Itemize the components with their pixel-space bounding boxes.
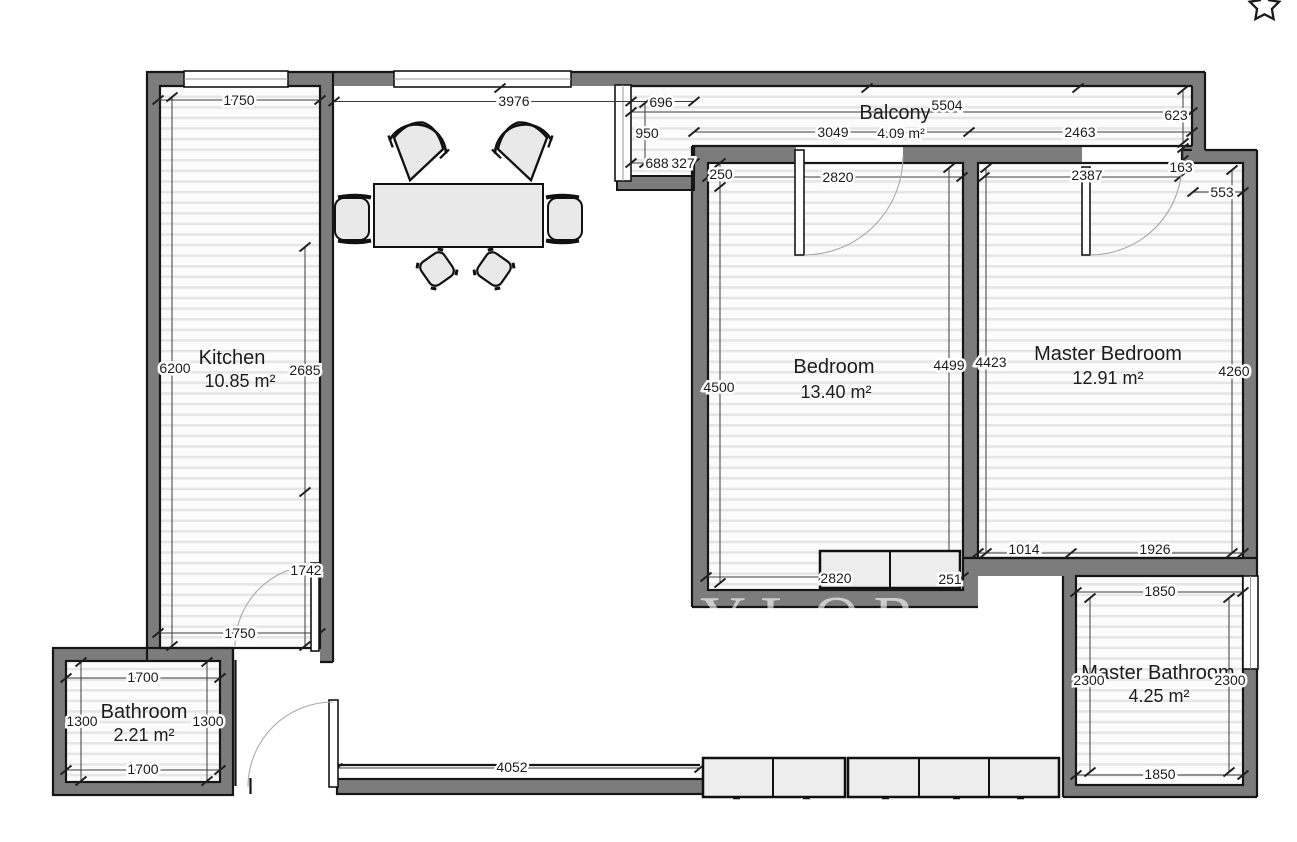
- svg-text:2300: 2300: [1214, 672, 1245, 688]
- svg-text:Kitchen: Kitchen: [199, 347, 266, 369]
- svg-text:Bathroom: Bathroom: [101, 701, 188, 723]
- svg-text:251: 251: [938, 571, 962, 587]
- svg-text:2820: 2820: [822, 169, 853, 185]
- svg-text:1300: 1300: [66, 713, 97, 729]
- svg-text:4499: 4499: [933, 357, 964, 373]
- svg-text:2820: 2820: [820, 570, 851, 586]
- svg-text:950: 950: [635, 125, 659, 141]
- svg-text:553: 553: [1210, 184, 1234, 200]
- svg-text:4423: 4423: [975, 354, 1006, 370]
- svg-text:Master Bedroom: Master Bedroom: [1034, 343, 1182, 365]
- svg-text:1742: 1742: [290, 562, 321, 578]
- svg-text:Bedroom: Bedroom: [793, 356, 874, 378]
- svg-text:2463: 2463: [1064, 124, 1095, 140]
- svg-text:4260: 4260: [1218, 363, 1249, 379]
- svg-text:1850: 1850: [1144, 766, 1175, 782]
- svg-text:12.91 m²: 12.91 m²: [1072, 368, 1143, 388]
- svg-text:250: 250: [709, 166, 733, 182]
- svg-text:688: 688: [645, 155, 669, 171]
- svg-text:2300: 2300: [1073, 672, 1104, 688]
- svg-text:1014: 1014: [1008, 541, 1039, 557]
- svg-text:4052: 4052: [496, 759, 527, 775]
- svg-text:1300: 1300: [192, 713, 223, 729]
- svg-text:1750: 1750: [224, 625, 255, 641]
- svg-text:163: 163: [1169, 159, 1193, 175]
- svg-text:YLOR: YLOR: [700, 583, 930, 654]
- svg-text:696: 696: [649, 94, 673, 110]
- svg-text:13.40 m²: 13.40 m²: [800, 382, 871, 402]
- svg-text:623: 623: [1164, 107, 1188, 123]
- svg-text:5504: 5504: [931, 97, 962, 113]
- svg-text:3049: 3049: [817, 124, 848, 140]
- svg-text:2387: 2387: [1071, 167, 1102, 183]
- svg-text:1926: 1926: [1139, 541, 1170, 557]
- svg-text:Balcony: Balcony: [859, 102, 930, 124]
- svg-text:4.09 m²: 4.09 m²: [877, 125, 925, 141]
- svg-text:327: 327: [671, 155, 695, 171]
- svg-text:10.85 m²: 10.85 m²: [204, 371, 275, 391]
- svg-text:4500: 4500: [703, 379, 734, 395]
- svg-text:2.21 m²: 2.21 m²: [113, 725, 174, 745]
- svg-text:1700: 1700: [127, 669, 158, 685]
- svg-text:4.25 m²: 4.25 m²: [1128, 686, 1189, 706]
- svg-text:2685: 2685: [289, 362, 320, 378]
- svg-text:1850: 1850: [1144, 583, 1175, 599]
- svg-text:1750: 1750: [223, 92, 254, 108]
- svg-text:6200: 6200: [159, 360, 190, 376]
- svg-text:1700: 1700: [127, 761, 158, 777]
- svg-text:3976: 3976: [498, 93, 529, 109]
